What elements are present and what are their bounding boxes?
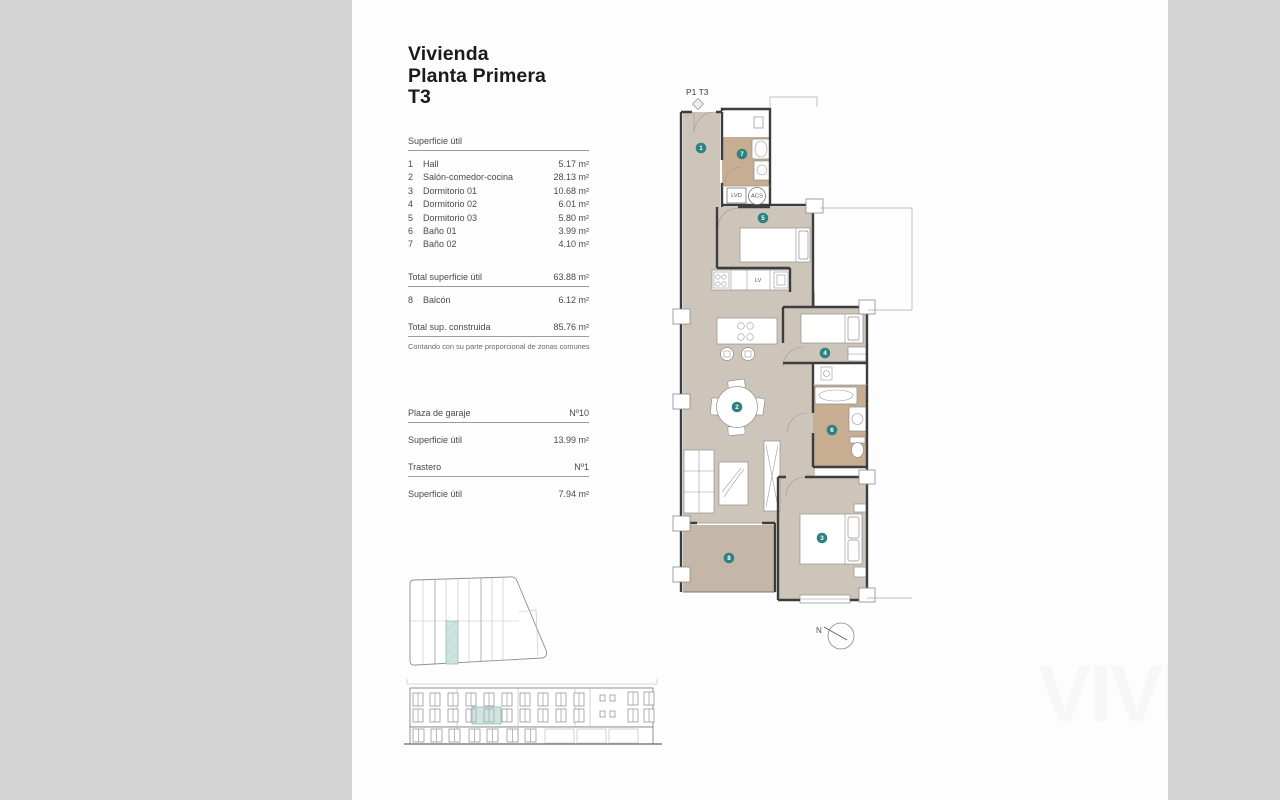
svg-text:ACS: ACS <box>751 194 763 200</box>
garage-area-row: Superficie útil 13.99 m² <box>408 435 589 445</box>
storage-area-row: Superficie útil 7.94 m² <box>408 489 589 499</box>
svg-text:6: 6 <box>830 427 834 434</box>
table-row: 7 Baño 02 4.10 m² <box>408 239 589 252</box>
bed-dorm02 <box>801 314 863 343</box>
elevation-highlight <box>472 707 501 724</box>
table-row: 5 Dormitorio 03 5.80 m² <box>408 213 589 226</box>
title-line-2: Planta Primera <box>408 66 546 88</box>
wardrobe-dorm02 <box>848 347 866 361</box>
watermark: VIVE <box>1038 648 1168 740</box>
table-row: 4 Dormitorio 02 6.01 m² <box>408 199 589 212</box>
room-badge-bath02: 7 <box>737 149 748 160</box>
window-dorm01 <box>800 595 850 603</box>
svg-text:LVD: LVD <box>731 193 742 199</box>
table-row: 6 Baño 01 3.99 m² <box>408 226 589 239</box>
title-line-3: T3 <box>408 87 546 109</box>
entrance-arrow-icon <box>693 99 704 110</box>
garage-row: Plaza de garaje Nº10 <box>408 408 589 423</box>
key-plan-highlight <box>446 617 458 664</box>
kitchen-island <box>717 318 777 344</box>
table-row: 1 Hall 5.17 m² <box>408 159 589 172</box>
sofa <box>684 450 714 513</box>
table-row: 2 Salón-comedor-cocina 28.13 m² <box>408 172 589 185</box>
total-util-row: Total superficie útil 63.88 m² <box>408 272 589 287</box>
laundry-fixture <box>754 117 763 128</box>
nightstand <box>854 567 866 577</box>
washbasin-bath01 <box>849 407 866 431</box>
svg-text:1: 1 <box>699 145 703 152</box>
room-badge-bath01: 6 <box>827 425 838 436</box>
room-badge-dorm01: 3 <box>817 533 828 544</box>
svg-text:7: 7 <box>740 151 744 158</box>
svg-text:5: 5 <box>761 215 765 222</box>
nightstand <box>854 504 866 512</box>
north-label: N <box>816 626 822 635</box>
surface-table-header: Superficie útil <box>408 136 589 151</box>
garage-info: Plaza de garaje Nº10 Superficie útil 13.… <box>408 408 589 499</box>
storage-row: Trastero Nº1 <box>408 462 589 477</box>
title-line-1: Vivienda <box>408 44 546 66</box>
north-compass-icon: N <box>816 623 854 649</box>
toilet-bath01 <box>850 437 865 458</box>
building-elevation <box>403 678 665 750</box>
bed-dorm01 <box>800 514 862 564</box>
room-badge-hall: 1 <box>696 143 707 154</box>
svg-text:3: 3 <box>820 535 824 542</box>
svg-text:8: 8 <box>727 555 731 562</box>
washbasin-bath02 <box>754 161 770 180</box>
table-note: Contando con su parte proporcional de zo… <box>408 342 589 351</box>
kitchen-counter <box>712 270 790 290</box>
total-built-row: Total sup. construida 85.76 m² <box>408 322 589 337</box>
room-badge-dorm02: 4 <box>820 348 831 359</box>
page-title: Vivienda Planta Primera T3 <box>408 44 546 109</box>
surface-table: Superficie útil 1 Hall 5.17 m² 2 Salón-c… <box>408 136 589 351</box>
dishwasher-label: LV <box>755 278 762 284</box>
room-badge-balcon: 8 <box>724 553 735 564</box>
acs-circle: ACS <box>749 188 766 205</box>
balcony-row: 8 Balcón 6.12 m² <box>408 295 589 308</box>
room-badge-salon: 2 <box>732 402 743 413</box>
coffee-table <box>719 462 748 505</box>
svg-text:2: 2 <box>735 404 739 411</box>
table-row: 3 Dormitorio 01 10.68 m² <box>408 186 589 199</box>
room-badge-dorm03: 5 <box>758 213 769 224</box>
svg-text:4: 4 <box>823 350 827 357</box>
bathtub-bath01 <box>815 387 857 404</box>
plan-label: P1 T3 <box>686 87 709 97</box>
floor-plan: LV <box>657 84 919 660</box>
key-plan <box>405 575 550 670</box>
document-page: Vivienda Planta Primera T3 Superficie út… <box>352 0 1168 800</box>
lvd-box: LVD <box>727 188 746 203</box>
bathtub-bath02 <box>752 139 770 159</box>
bed-dorm03 <box>740 228 810 262</box>
